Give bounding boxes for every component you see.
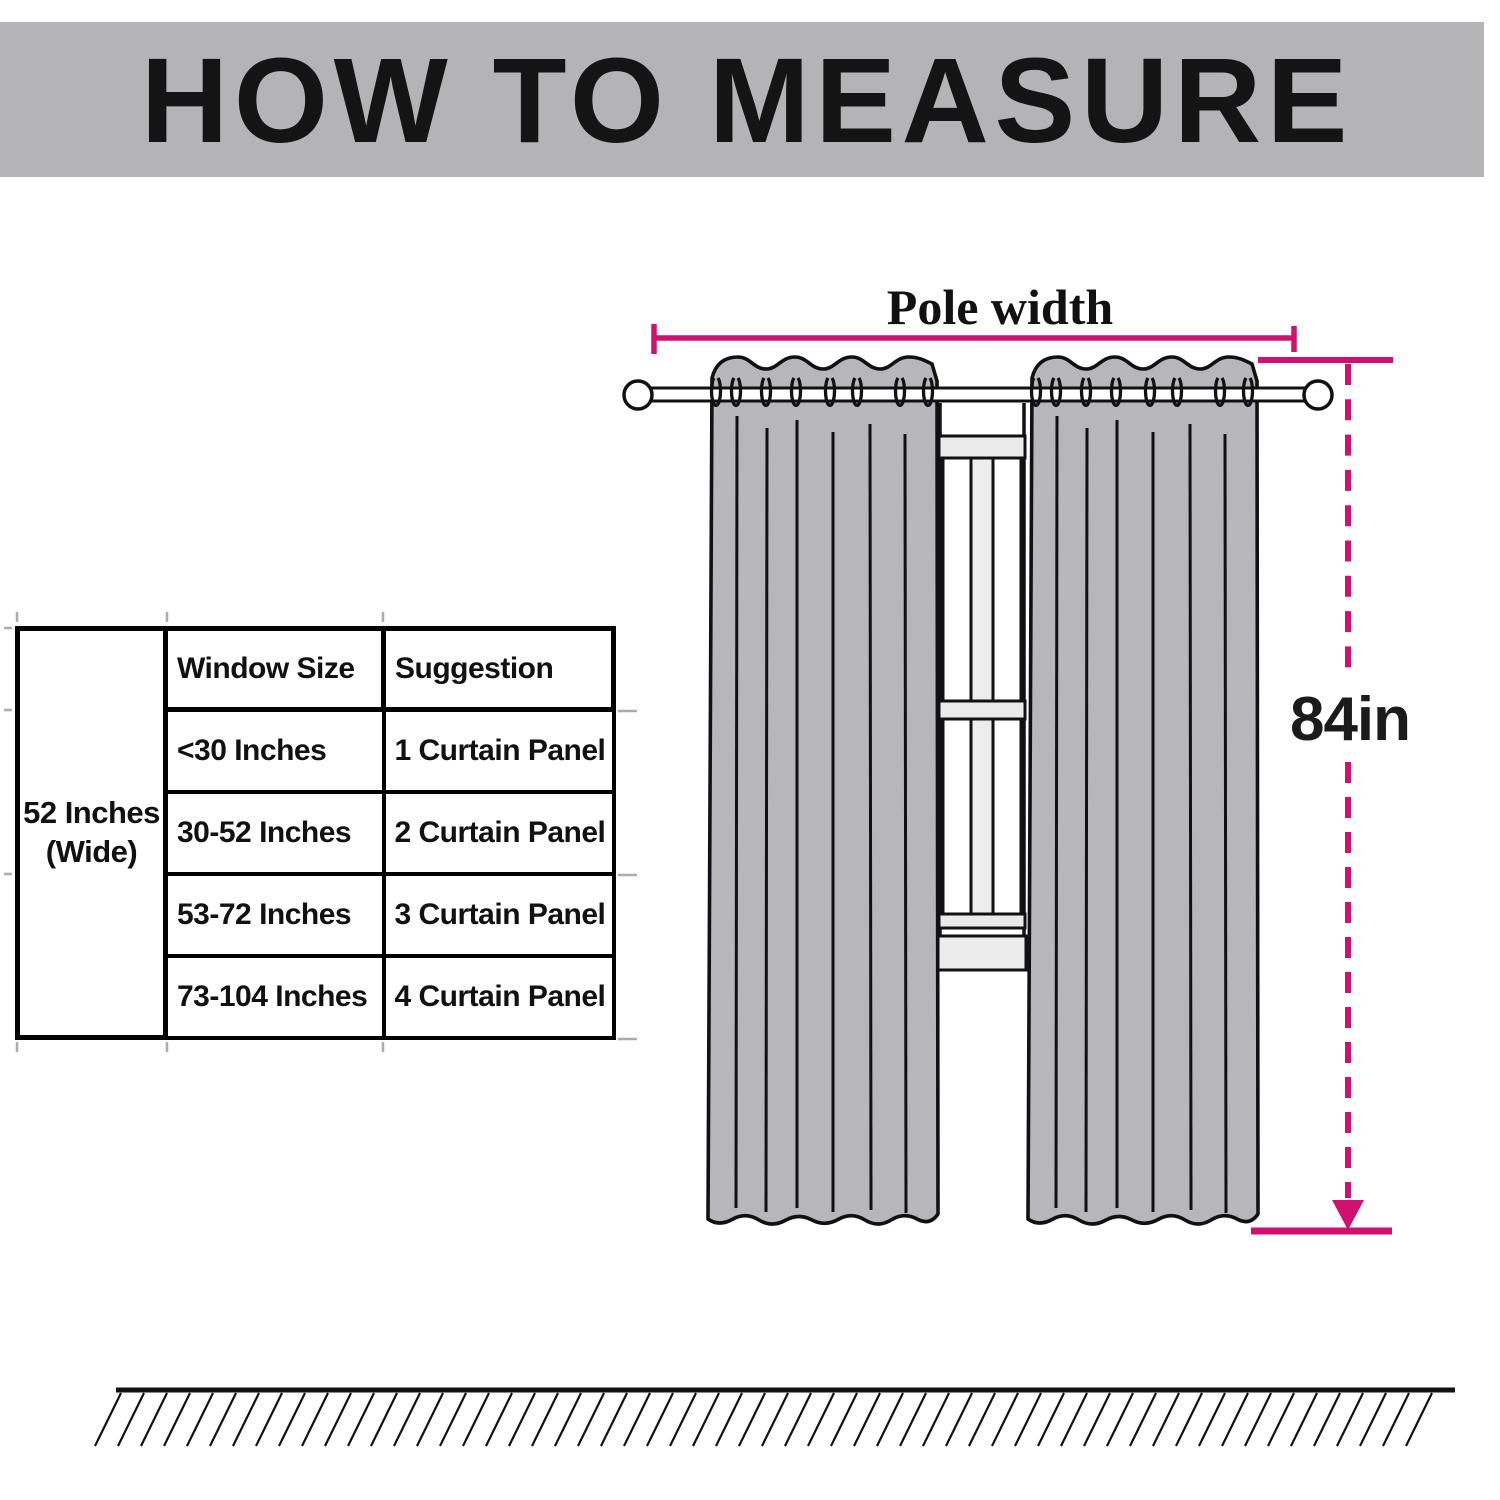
svg-text:Pole width: Pole width (887, 279, 1114, 335)
svg-text:84in: 84in (1290, 685, 1410, 754)
